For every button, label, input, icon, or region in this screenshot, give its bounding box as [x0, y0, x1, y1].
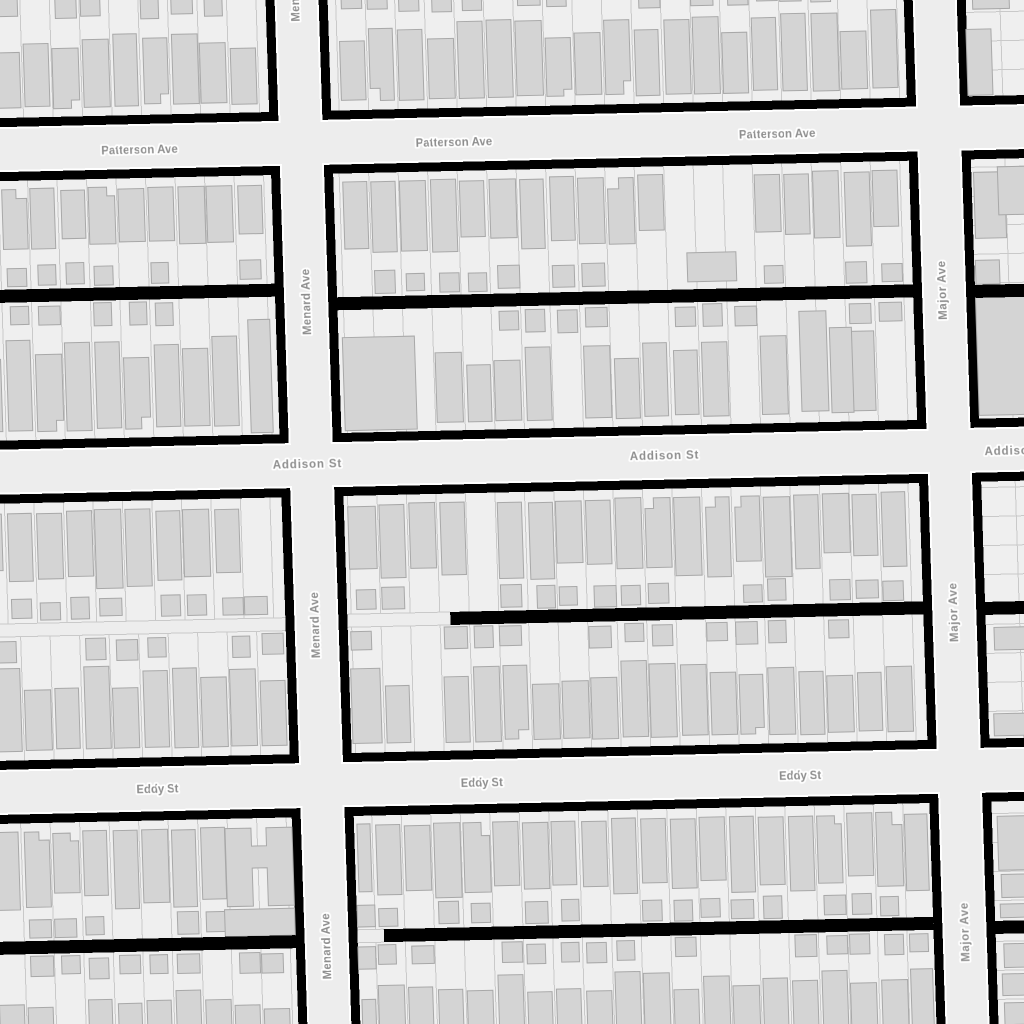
- svg-text:Addison St: Addison St: [630, 450, 699, 464]
- svg-text:Patterson Ave: Patterson Ave: [416, 136, 493, 150]
- svg-text:Major Ave: Major Ave: [959, 903, 973, 962]
- svg-text:Major Ave: Major Ave: [936, 261, 950, 320]
- svg-text:Major Ave: Major Ave: [947, 583, 961, 642]
- svg-text:Menard Ave: Menard Ave: [289, 0, 303, 22]
- svg-text:Eddy St: Eddy St: [779, 770, 822, 783]
- svg-text:Patterson Ave: Patterson Ave: [739, 128, 816, 142]
- svg-text:Eddy St: Eddy St: [136, 783, 179, 796]
- svg-text:Patterson Ave: Patterson Ave: [101, 144, 178, 158]
- svg-text:Addison St: Addison St: [273, 458, 342, 472]
- svg-text:Menard Ave: Menard Ave: [309, 592, 323, 658]
- svg-text:Addison St: Addison St: [984, 444, 1024, 458]
- svg-text:Eddy St: Eddy St: [461, 777, 504, 790]
- svg-text:Menard Ave: Menard Ave: [320, 913, 334, 979]
- svg-text:Menard Ave: Menard Ave: [300, 269, 314, 335]
